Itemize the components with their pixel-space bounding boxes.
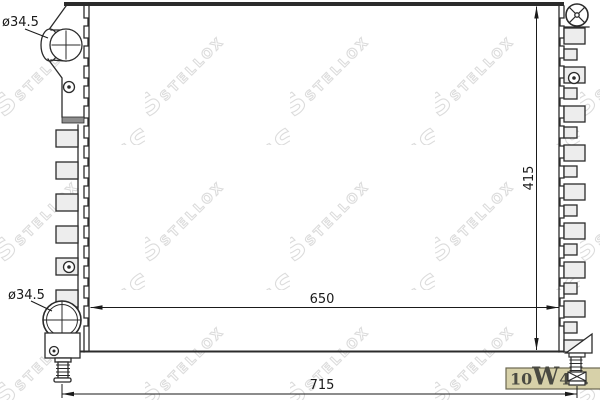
bracket-hole-left-dot xyxy=(53,350,56,353)
cap-center xyxy=(575,13,579,17)
inlet-pipe-top xyxy=(41,29,82,61)
mount-hole-lower-left-dot xyxy=(67,265,71,269)
dimension-height-label: 415 xyxy=(522,166,537,191)
watermark-background xyxy=(0,0,600,400)
filler-cap xyxy=(566,4,588,26)
top-pipe-diameter-label: ø34.5 xyxy=(2,15,39,30)
bottom-pipe-diameter-label: ø34.5 xyxy=(8,288,45,303)
dimension-core-width-label: 650 xyxy=(310,292,335,307)
drawing-canvas: SSTELLOX SSTELLOX xyxy=(0,0,600,400)
left-gasket-bar xyxy=(62,117,84,123)
dimension-overall-width-label: 715 xyxy=(310,378,335,393)
mount-hole-right-dot xyxy=(572,76,576,80)
mount-hole-upper-left-dot xyxy=(67,85,71,89)
radiator-technical-drawing: SSTELLOX SSTELLOX xyxy=(0,0,600,400)
